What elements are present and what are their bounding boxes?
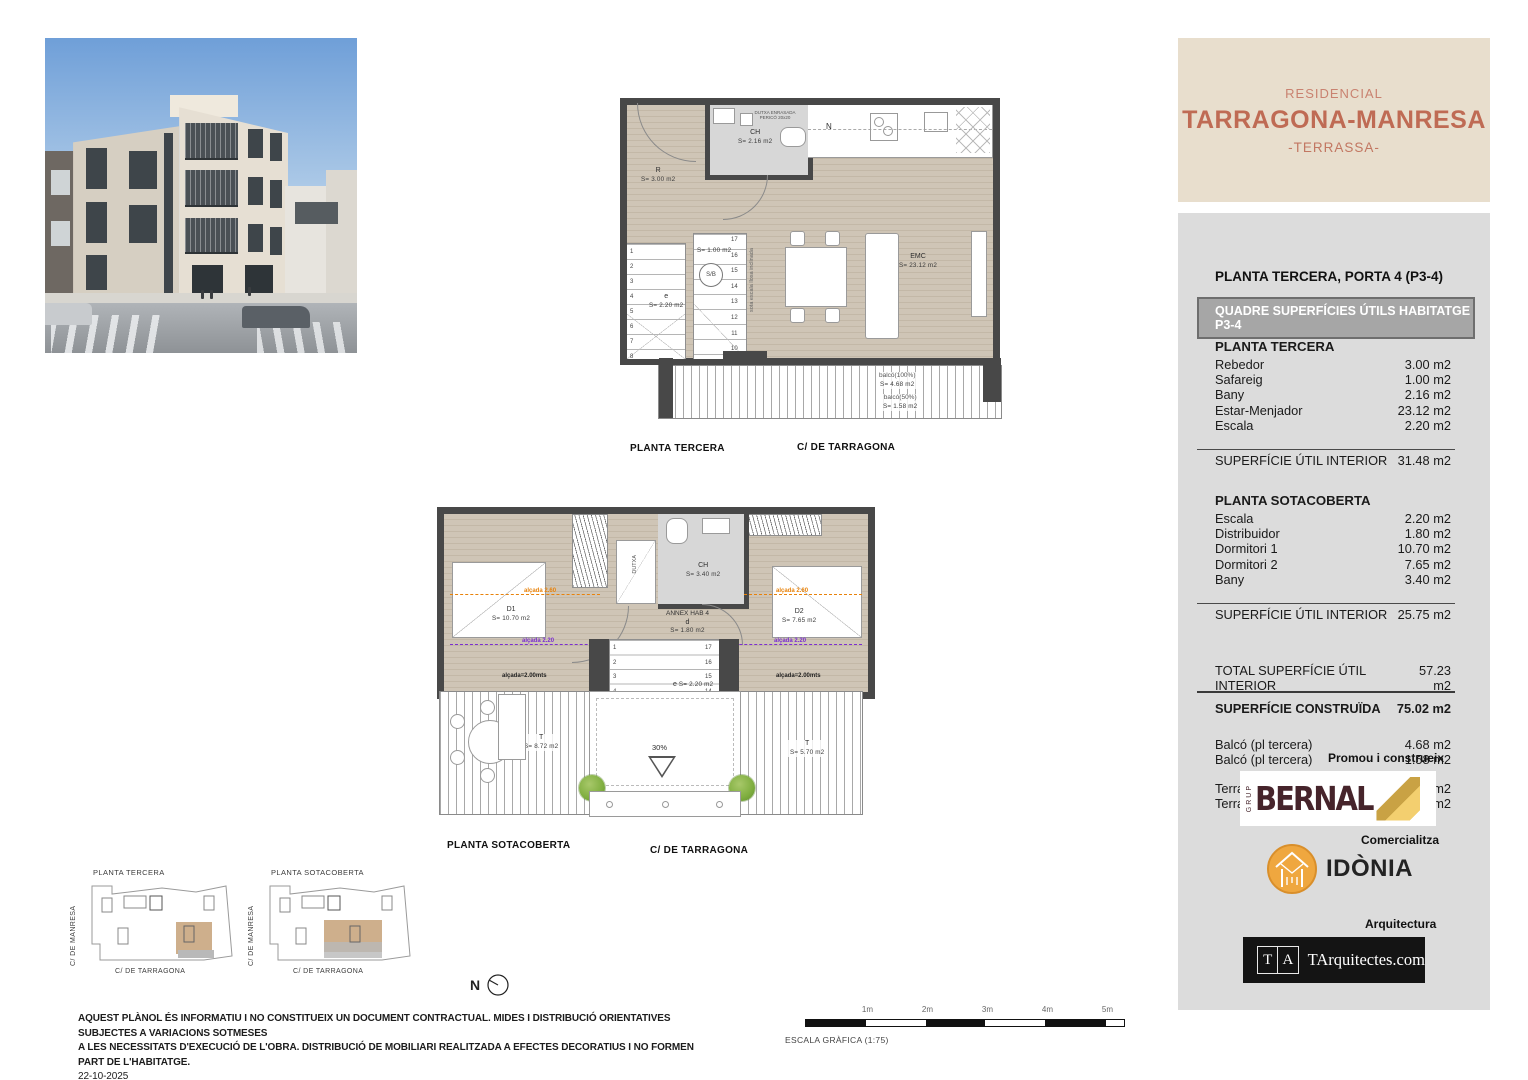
room-label-ch2: CHS= 3.40 m2 <box>686 562 720 579</box>
surfaces-planta-tercera: PLANTA TERCERA Rebedor3.00 m2 Safareig1.… <box>1215 339 1451 433</box>
ta-a-badge: A <box>1278 946 1298 974</box>
subtotal-sotacoberta: SUPERFÍCIE ÚTIL INTERIOR25.75 m2 <box>1215 607 1451 622</box>
project-title-block: RESIDENCIAL TARRAGONA-MANRESA -TERRASSA- <box>1178 38 1490 202</box>
section-title: PLANTA TERCERA <box>1215 339 1451 354</box>
plan-sheet: DUTXA ENRASADA PERICÓ 20x20 CHS= 2.16 m2… <box>0 0 1528 1080</box>
stair-numbers: 1716151413121110 <box>731 233 738 358</box>
floorplan-planta-sotacoberta: D1S= 10.70 m2 DUTXA CHS= 3.40 m2 ANNEX H… <box>437 507 877 837</box>
balcony: balcó(100%)S= 4.68 m2 balcó(50%)S= 1.58 … <box>658 365 1002 419</box>
cooktop-icon <box>870 113 898 141</box>
wardrobe <box>572 514 608 588</box>
graphic-scale: 1m2m3m4m5m ESCALA GRÀFICA (1:75) <box>785 1005 1125 1045</box>
room-label-emc: EMCS= 23.12 m2 <box>899 253 937 270</box>
room-label-escala2: e S= 2.20 m2 <box>673 681 713 690</box>
project-name: TARRAGONA-MANRESA <box>1182 106 1486 135</box>
surface-row: Bany3.40 m2 <box>1215 572 1451 587</box>
fridge-icon <box>956 107 990 153</box>
planter-box <box>498 694 526 760</box>
tarquitectes-logo: T A TArquitectes.com <box>1243 937 1425 983</box>
room-label-annex: ANNEX HAB 4 d S= 1.80 m2 <box>666 610 709 636</box>
grup-label: GRUP <box>1246 784 1253 812</box>
subtotal-tercera: SUPERFÍCIE ÚTIL INTERIOR31.48 m2 <box>1215 453 1451 468</box>
plan2-street-label: C/ DE TARRAGONA <box>650 845 748 856</box>
toilet-icon <box>780 127 806 147</box>
plan2-title: PLANTA SOTACOBERTA <box>447 840 570 851</box>
kitchen-counter: N <box>808 105 993 158</box>
stair-numbers: 12345678 <box>630 245 633 365</box>
dining-table <box>785 247 847 307</box>
room-label-rebedor: RS= 3.00 m2 <box>641 167 675 184</box>
bernal-wordmark: BERNAL <box>1255 779 1372 817</box>
floorplan-planta-tercera: DUTXA ENRASADA PERICÓ 20x20 CHS= 2.16 m2… <box>620 98 1000 423</box>
room-label-d1: D1S= 10.70 m2 <box>492 606 530 623</box>
shower-dutxa: DUTXA <box>616 540 656 604</box>
bathroom-ch2: CHS= 3.40 m2 <box>658 514 749 609</box>
balcony-label-100: balcó(100%)S= 4.68 m2 <box>877 372 918 389</box>
slope-arrow-icon <box>648 756 676 778</box>
north-label: N <box>470 977 480 993</box>
room-label-d2: D2S= 7.65 m2 <box>782 608 816 625</box>
disclaimer-line-2: A LES NECESSITATS D'EXECUCIÓ DE L'OBRA. … <box>78 1041 718 1070</box>
toilet-icon <box>666 518 688 544</box>
keyplan-planta-tercera: PLANTA TERCERA C/ DE MANRESA C/ DE TARRA… <box>70 868 240 988</box>
surface-row: Dormitori 27.65 m2 <box>1215 557 1451 572</box>
gutter <box>589 791 741 817</box>
surface-row: Balcó (pl tercera)4.68 m2 <box>1215 737 1451 752</box>
scale-bar <box>805 1019 1125 1027</box>
surfaces-panel: PLANTA TERCERA, PORTA 4 (P3-4) QUADRE SU… <box>1178 213 1490 1010</box>
branding-block: Promou i construeix GRUP BERNAL Comercia… <box>1178 751 1490 1010</box>
surface-row: Safareig1.00 m2 <box>1215 372 1451 387</box>
bernal-logo-icon <box>1376 777 1420 821</box>
surface-row: Escala2.20 m2 <box>1215 511 1451 526</box>
surface-row: Estar-Menjador23.12 m2 <box>1215 403 1451 418</box>
building-render <box>45 38 357 353</box>
plan1-street-label: C/ DE TARRAGONA <box>797 442 895 453</box>
terrace-right: TS= 5.70 m2 <box>739 691 863 815</box>
unit-title: PLANTA TERCERA, PORTA 4 (P3-4) <box>1215 269 1443 284</box>
surface-row: Dormitori 110.70 m2 <box>1215 541 1451 556</box>
surface-row: Escala2.20 m2 <box>1215 418 1451 433</box>
balcony-label-50: balcó(50%)S= 1.58 m2 <box>881 394 919 411</box>
terrace-left: TS= 8.72 m2 <box>439 691 591 815</box>
arquitectura-label: Arquitectura <box>1365 917 1436 931</box>
tarquitectes-wordmark: TArquitectes.com <box>1308 950 1425 970</box>
sink-icon <box>702 518 730 534</box>
plan-date: 22-10-2025 <box>78 1070 718 1080</box>
surfaces-table-header: QUADRE SUPERFÍCIES ÚTILS HABITATGE P3-4 <box>1197 297 1475 339</box>
surface-row: Rebedor3.00 m2 <box>1215 357 1451 372</box>
scale-label: ESCALA GRÀFICA (1:75) <box>785 1035 1125 1045</box>
north-arrow-icon <box>484 972 510 998</box>
stair-direction-badge: S/B <box>699 263 723 287</box>
scale-ticks: 1m2m3m4m5m <box>805 1005 1125 1017</box>
disclaimer: AQUEST PLÀNOL ÉS INFORMATIU I NO CONSTIT… <box>78 1012 718 1080</box>
residencial-label: RESIDENCIAL <box>1285 86 1383 101</box>
bathroom-ch: DUTXA ENRASADA PERICÓ 20x20 CHS= 2.16 m2 <box>705 105 813 180</box>
cabinet <box>971 231 987 317</box>
room-label-escala: eS= 2.20 m2 <box>649 293 683 310</box>
surface-row: Bany2.16 m2 <box>1215 387 1451 402</box>
promou-label: Promou i construeix <box>1328 751 1444 765</box>
terrace-label-2: TS= 5.70 m2 <box>788 740 826 757</box>
bernal-logo: GRUP BERNAL <box>1240 771 1436 826</box>
idonia-logo-icon <box>1266 843 1318 895</box>
terrace-label-1: TS= 8.72 m2 <box>522 734 560 751</box>
total-row: TOTAL SUPERFÍCIE ÚTIL INTERIOR57.23 m2 <box>1215 663 1451 693</box>
disclaimer-line-1: AQUEST PLÀNOL ÉS INFORMATIU I NO CONSTIT… <box>78 1012 718 1041</box>
surface-row: Distribuidor1.80 m2 <box>1215 526 1451 541</box>
bed-d2 <box>772 566 862 638</box>
bed-d1 <box>452 562 546 638</box>
wardrobe <box>744 514 822 536</box>
roof-slope: 30% <box>589 691 741 793</box>
sofa <box>865 233 899 339</box>
idonia-wordmark: IDÒNIA <box>1326 855 1413 883</box>
surfaces-planta-sotacoberta: PLANTA SOTACOBERTA Escala2.20 m2 Distrib… <box>1215 493 1451 587</box>
kitchen-sink-icon <box>924 112 948 132</box>
section-title: PLANTA SOTACOBERTA <box>1215 493 1451 508</box>
ta-t-badge: T <box>1257 946 1278 974</box>
neighbor-building-far-right <box>326 170 357 305</box>
project-location: -TERRASSA- <box>1288 140 1380 155</box>
north-indicator: N <box>470 972 510 998</box>
construida-row: SUPERFÍCIE CONSTRUÏDA75.02 m2 <box>1215 701 1451 716</box>
plan1-title: PLANTA TERCERA <box>630 443 725 454</box>
keyplan-planta-sotacoberta: PLANTA SOTACOBERTA C/ DE MANRESA C/ DE T… <box>248 868 418 988</box>
car <box>45 303 92 325</box>
idonia-logo: IDÒNIA <box>1266 843 1413 895</box>
car <box>242 306 311 328</box>
sink-icon <box>713 108 735 124</box>
